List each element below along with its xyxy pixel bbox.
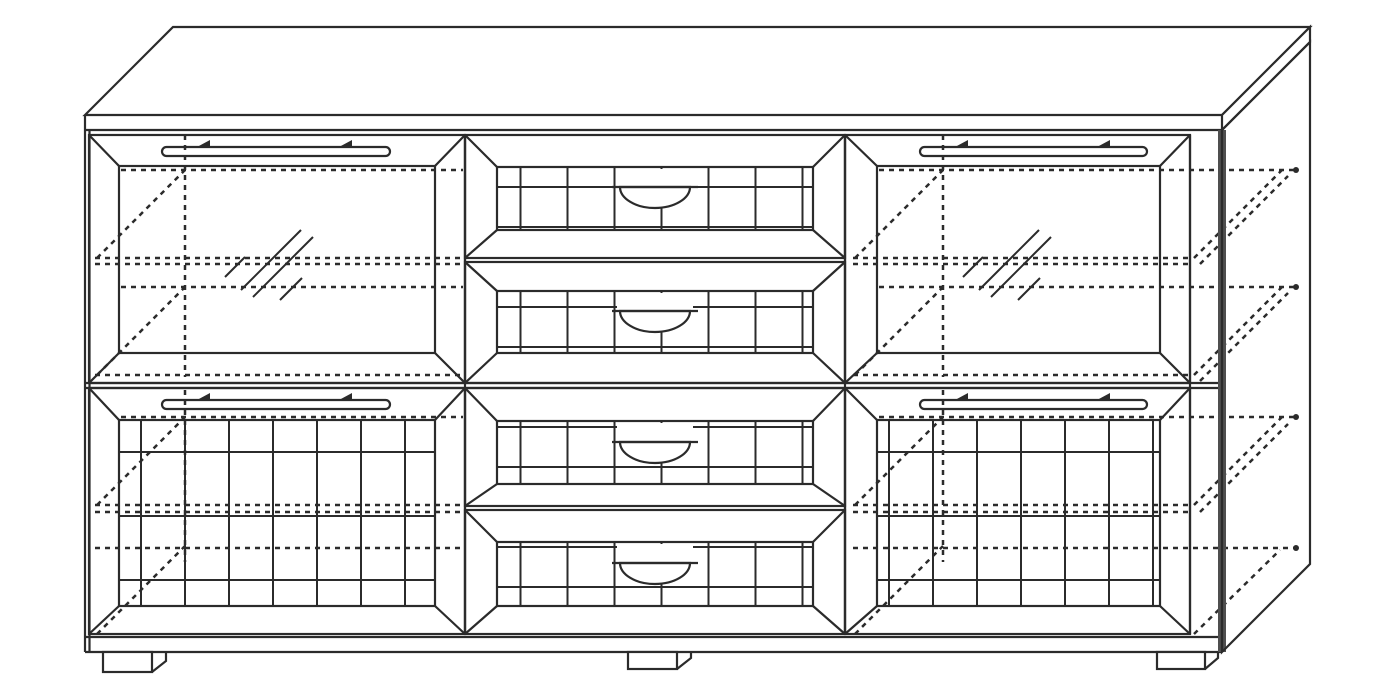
bar-handle <box>920 393 1147 409</box>
handle-bar <box>162 147 390 156</box>
hidden-line-end-dots <box>1293 167 1299 551</box>
door-glass-panel <box>119 166 435 353</box>
hidden-lines-upper-right <box>853 135 1296 381</box>
foot-front-face <box>628 652 677 669</box>
hidden-lines-upper-left <box>95 135 463 377</box>
bar-handle <box>162 393 390 409</box>
foot-side-edge <box>152 652 166 672</box>
foot-side-edge <box>1205 652 1218 669</box>
top-panel <box>85 27 1310 130</box>
foot-left <box>103 652 166 672</box>
drawer-4 <box>465 510 845 634</box>
top-panel-top-face <box>85 27 1310 115</box>
handle-bar <box>920 147 1147 156</box>
right-side-panel <box>1218 42 1310 652</box>
drawer-3 <box>465 388 845 506</box>
foot-front-face <box>1157 652 1205 669</box>
handle-mount-icon <box>339 140 352 147</box>
foot-front-face <box>103 652 152 672</box>
side-panel-outline <box>1222 42 1310 652</box>
foot-right <box>1157 652 1218 669</box>
handle-bar <box>920 400 1147 409</box>
handle-mount-icon <box>955 140 968 147</box>
drawer-1 <box>465 135 845 258</box>
handle-mount-icon <box>339 393 352 400</box>
handle-mount-icon <box>955 393 968 400</box>
bar-handle <box>920 140 1147 156</box>
foot-center <box>628 652 691 669</box>
handle-mount-icon <box>197 393 210 400</box>
furniture-diagram: Sideboard cabinet — technical line drawi… <box>0 0 1400 700</box>
sideboard-drawing: Sideboard cabinet — technical line drawi… <box>0 0 1400 700</box>
handle-bar <box>162 400 390 409</box>
foot-side-edge <box>677 652 691 669</box>
bar-handle <box>162 140 390 156</box>
drawer-2 <box>465 262 845 383</box>
